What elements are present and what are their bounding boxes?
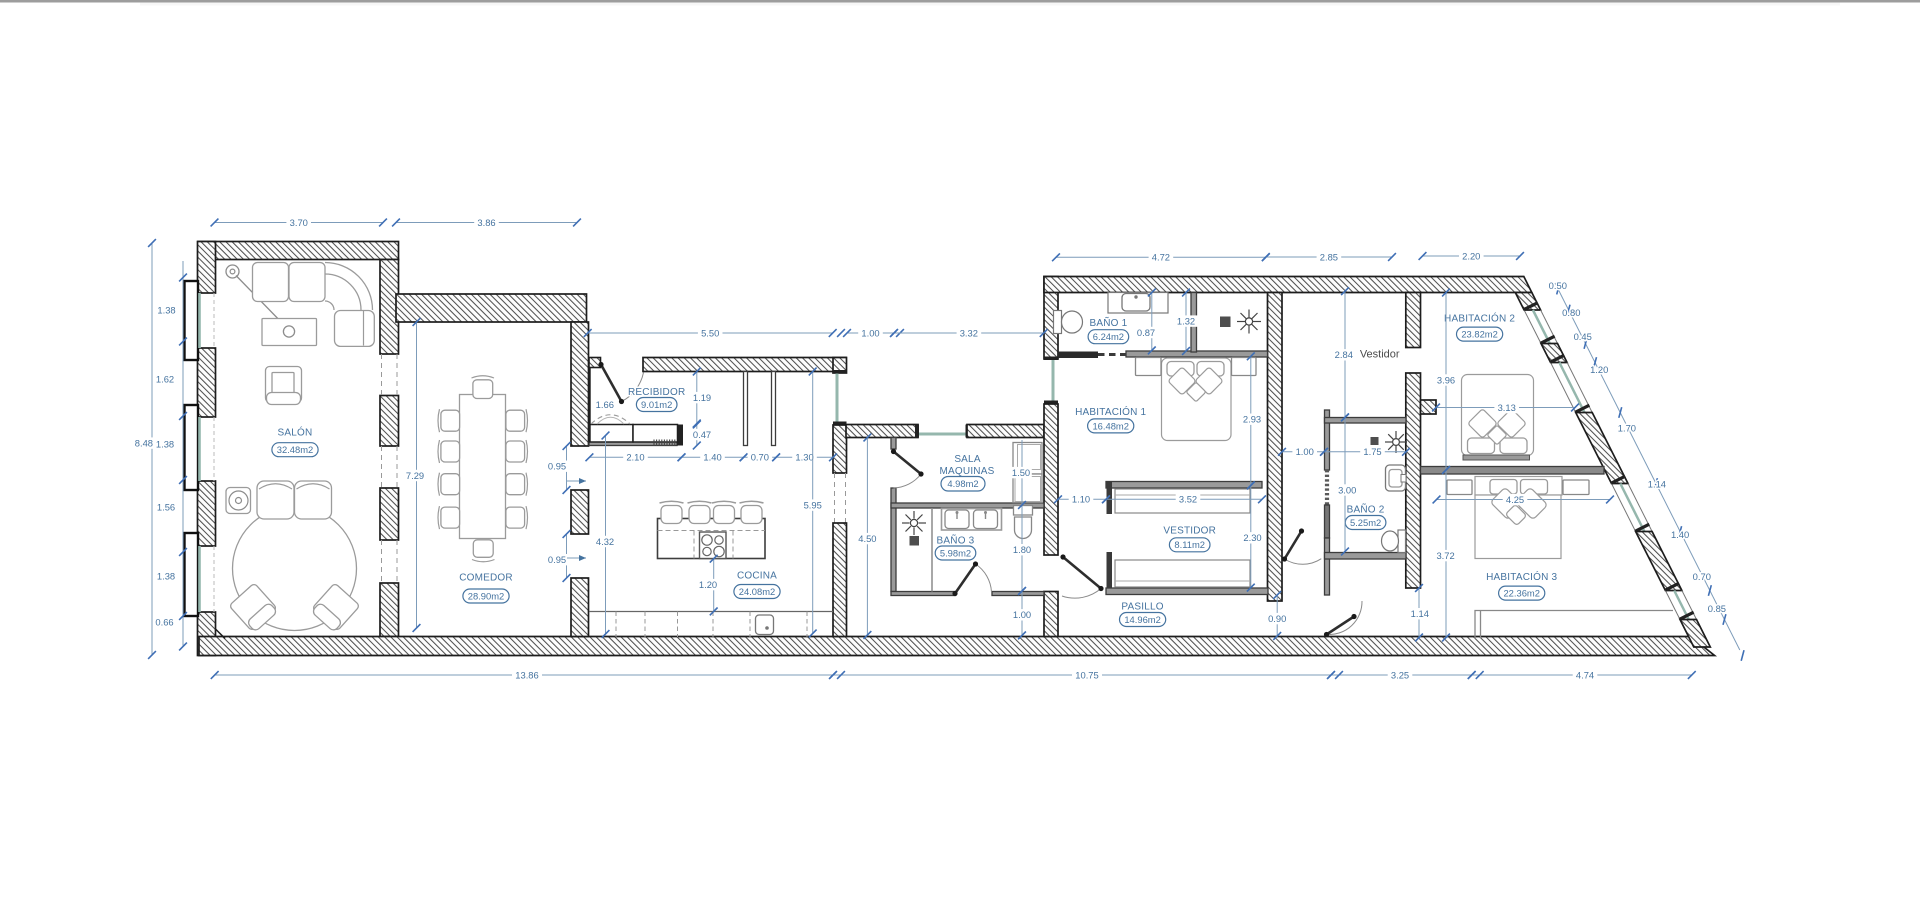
svg-text:8.11m2: 8.11m2: [1174, 539, 1205, 550]
svg-text:1.20: 1.20: [699, 579, 717, 590]
svg-text:9.01m2: 9.01m2: [641, 399, 672, 410]
svg-text:1.38: 1.38: [157, 305, 175, 316]
svg-text:0.90: 0.90: [1268, 613, 1286, 624]
svg-text:2.93: 2.93: [1243, 414, 1261, 425]
svg-text:0.70: 0.70: [751, 452, 769, 463]
svg-text:2.85: 2.85: [1320, 251, 1338, 262]
svg-text:SALA: SALA: [954, 454, 981, 465]
svg-text:22.36m2: 22.36m2: [1503, 588, 1539, 599]
svg-text:3.25: 3.25: [1391, 669, 1409, 680]
svg-text:1.14: 1.14: [1648, 478, 1666, 489]
svg-text:HABITACIÓN 3: HABITACIÓN 3: [1486, 570, 1557, 583]
svg-text:BAÑO 2: BAÑO 2: [1347, 503, 1385, 516]
svg-text:BAÑO 3: BAÑO 3: [937, 533, 975, 546]
svg-text:0.80: 0.80: [1562, 307, 1580, 318]
svg-text:4.50: 4.50: [858, 533, 876, 544]
svg-text:13.86: 13.86: [515, 669, 538, 680]
svg-text:4.32: 4.32: [596, 536, 614, 547]
svg-text:16.48m2: 16.48m2: [1092, 420, 1128, 431]
svg-text:7.29: 7.29: [406, 470, 424, 481]
svg-text:0.85: 0.85: [1708, 603, 1726, 614]
svg-text:3.00: 3.00: [1338, 484, 1356, 495]
svg-text:0.50: 0.50: [1549, 280, 1567, 291]
svg-text:5.25m2: 5.25m2: [1350, 517, 1381, 528]
svg-text:1.62: 1.62: [156, 374, 174, 385]
svg-text:1.30: 1.30: [795, 452, 813, 463]
svg-text:1.50: 1.50: [1012, 467, 1030, 478]
svg-text:3.86: 3.86: [477, 217, 495, 228]
svg-text:VESTIDOR: VESTIDOR: [1163, 526, 1216, 537]
svg-text:1.00: 1.00: [1296, 446, 1314, 457]
svg-text:4.74: 4.74: [1576, 669, 1594, 680]
svg-text:32.48m2: 32.48m2: [277, 444, 313, 455]
svg-text:2.20: 2.20: [1462, 250, 1480, 261]
svg-text:0.70: 0.70: [1693, 571, 1711, 582]
svg-text:5.95: 5.95: [804, 499, 822, 510]
svg-text:1.70: 1.70: [1618, 423, 1636, 434]
svg-text:3.52: 3.52: [1179, 494, 1197, 505]
svg-text:0.87: 0.87: [1137, 327, 1155, 338]
svg-text:MAQUINAS: MAQUINAS: [940, 466, 995, 477]
svg-text:3.70: 3.70: [290, 217, 308, 228]
svg-text:COCINA: COCINA: [737, 571, 777, 582]
svg-text:BAÑO 1: BAÑO 1: [1089, 316, 1127, 329]
svg-text:1.00: 1.00: [861, 327, 879, 338]
svg-text:1.38: 1.38: [157, 571, 175, 582]
svg-text:PASILLO: PASILLO: [1121, 602, 1163, 613]
svg-text:23.82m2: 23.82m2: [1461, 329, 1497, 340]
svg-text:0.45: 0.45: [1574, 331, 1592, 342]
svg-text:10.75: 10.75: [1075, 669, 1098, 680]
svg-text:4.72: 4.72: [1152, 252, 1170, 263]
svg-text:3.72: 3.72: [1436, 550, 1454, 561]
svg-text:1.20: 1.20: [1590, 364, 1608, 375]
svg-text:6.24m2: 6.24m2: [1093, 331, 1124, 342]
svg-text:2.10: 2.10: [626, 452, 644, 463]
svg-text:28.90m2: 28.90m2: [468, 590, 504, 601]
svg-text:1.66: 1.66: [596, 399, 614, 410]
svg-text:2.84: 2.84: [1335, 349, 1353, 360]
svg-text:1.14: 1.14: [1411, 608, 1429, 619]
svg-text:1.75: 1.75: [1363, 446, 1381, 457]
svg-text:Vestidor: Vestidor: [1360, 349, 1400, 361]
svg-text:1.19: 1.19: [693, 392, 711, 403]
svg-text:1.56: 1.56: [157, 502, 175, 513]
svg-text:1.40: 1.40: [703, 452, 721, 463]
svg-text:0.66: 0.66: [155, 617, 173, 628]
svg-text:COMEDOR: COMEDOR: [459, 573, 513, 584]
svg-text:3.32: 3.32: [960, 327, 978, 338]
svg-text:RECIBIDOR: RECIBIDOR: [628, 387, 685, 398]
svg-text:1.32: 1.32: [1177, 315, 1195, 326]
svg-text:4.98m2: 4.98m2: [947, 478, 978, 489]
svg-text:14.96m2: 14.96m2: [1124, 614, 1160, 625]
svg-text:3.96: 3.96: [1437, 374, 1455, 385]
svg-text:3.13: 3.13: [1498, 402, 1516, 413]
svg-text:4.25: 4.25: [1506, 494, 1524, 505]
svg-text:1.10: 1.10: [1072, 494, 1090, 505]
svg-text:1.38: 1.38: [156, 439, 174, 450]
svg-text:HABITACIÓN 1: HABITACIÓN 1: [1075, 405, 1146, 418]
svg-text:0.95: 0.95: [548, 554, 566, 565]
svg-text:2.30: 2.30: [1243, 532, 1261, 543]
svg-text:SALÓN: SALÓN: [278, 425, 313, 438]
svg-text:24.08m2: 24.08m2: [739, 586, 775, 597]
svg-text:0.47: 0.47: [693, 429, 711, 440]
svg-text:5.50: 5.50: [701, 327, 719, 338]
svg-text:1.00: 1.00: [1013, 609, 1031, 620]
svg-text:HABITACIÓN 2: HABITACIÓN 2: [1444, 311, 1515, 324]
svg-text:1.80: 1.80: [1013, 544, 1031, 555]
svg-text:5.98m2: 5.98m2: [940, 547, 971, 558]
svg-text:1.40: 1.40: [1671, 529, 1689, 540]
svg-text:0.95: 0.95: [548, 461, 566, 472]
svg-text:8.48: 8.48: [135, 437, 153, 448]
